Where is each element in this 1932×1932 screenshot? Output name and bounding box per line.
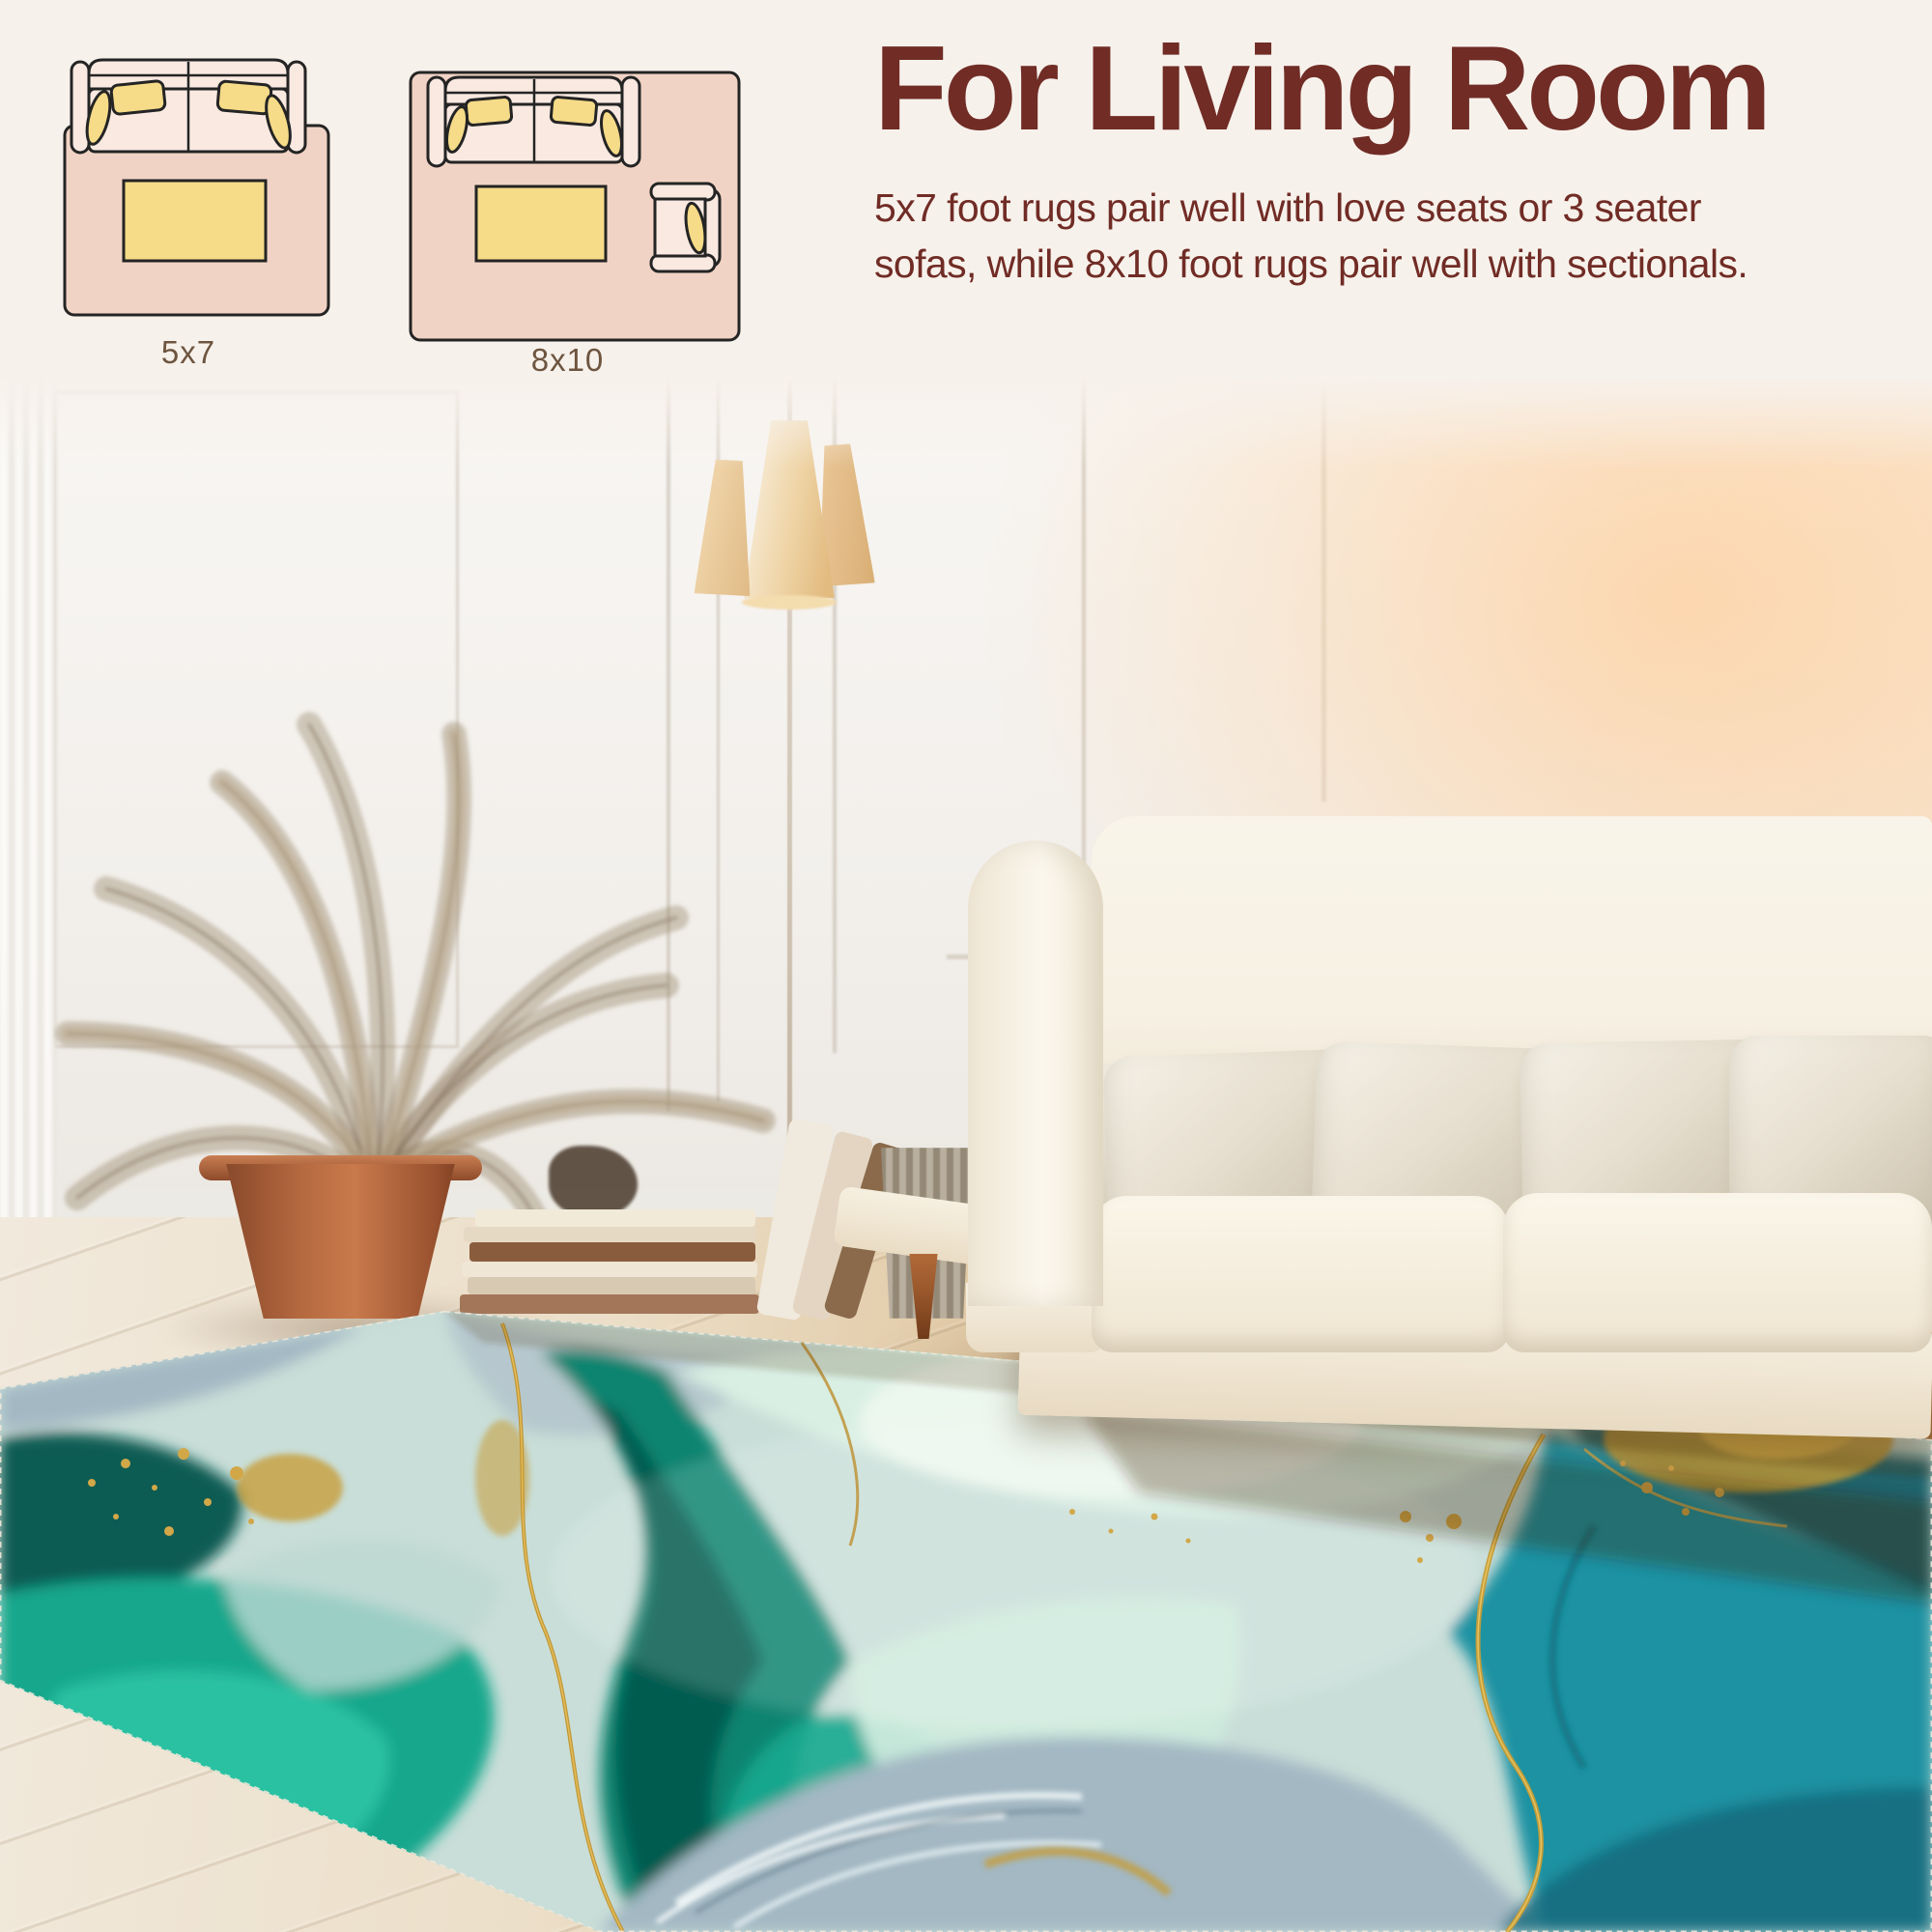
sofa-seat-cushion bbox=[1503, 1193, 1932, 1352]
pillow-icon bbox=[551, 97, 597, 126]
pillow-icon bbox=[217, 81, 271, 115]
rug-diagram-8x10: 8x10 bbox=[382, 29, 753, 357]
sofa-armrest bbox=[968, 840, 1103, 1306]
rug-size-guide-image: 5x7 bbox=[0, 0, 1932, 1932]
rug-size-label-5x7: 5x7 bbox=[29, 334, 348, 371]
sofa-top-view bbox=[428, 77, 639, 166]
sofa-seat-cushion bbox=[1092, 1196, 1509, 1352]
living-room-photo bbox=[0, 377, 1932, 1932]
coffee-table-icon bbox=[476, 186, 606, 261]
stacked-book bbox=[464, 1227, 755, 1242]
page-title: For Living Room bbox=[874, 23, 1922, 155]
stacked-book bbox=[475, 1209, 755, 1227]
pillow-icon bbox=[111, 80, 166, 114]
stacked-book bbox=[469, 1242, 755, 1262]
coffee-table-icon bbox=[124, 181, 266, 261]
header-photo-fade bbox=[0, 377, 1932, 469]
three-seater-sofa-icon bbox=[382, 29, 753, 353]
description-line-1: 5x7 foot rugs pair well with love seats … bbox=[874, 180, 1922, 236]
description-line-2: sofas, while 8x10 foot rugs pair well wi… bbox=[874, 236, 1922, 292]
rug-size-label-8x10: 8x10 bbox=[382, 342, 753, 379]
armchair-icon bbox=[651, 184, 720, 271]
header-copy: For Living Room 5x7 foot rugs pair well … bbox=[874, 23, 1922, 292]
sofa-top-view bbox=[71, 60, 305, 153]
loveseat-sofa-icon bbox=[29, 29, 348, 338]
pillow-icon bbox=[466, 97, 512, 126]
header-section: 5x7 bbox=[0, 0, 1932, 379]
rug-diagram-5x7: 5x7 bbox=[29, 29, 348, 343]
stacked-book bbox=[462, 1262, 757, 1277]
